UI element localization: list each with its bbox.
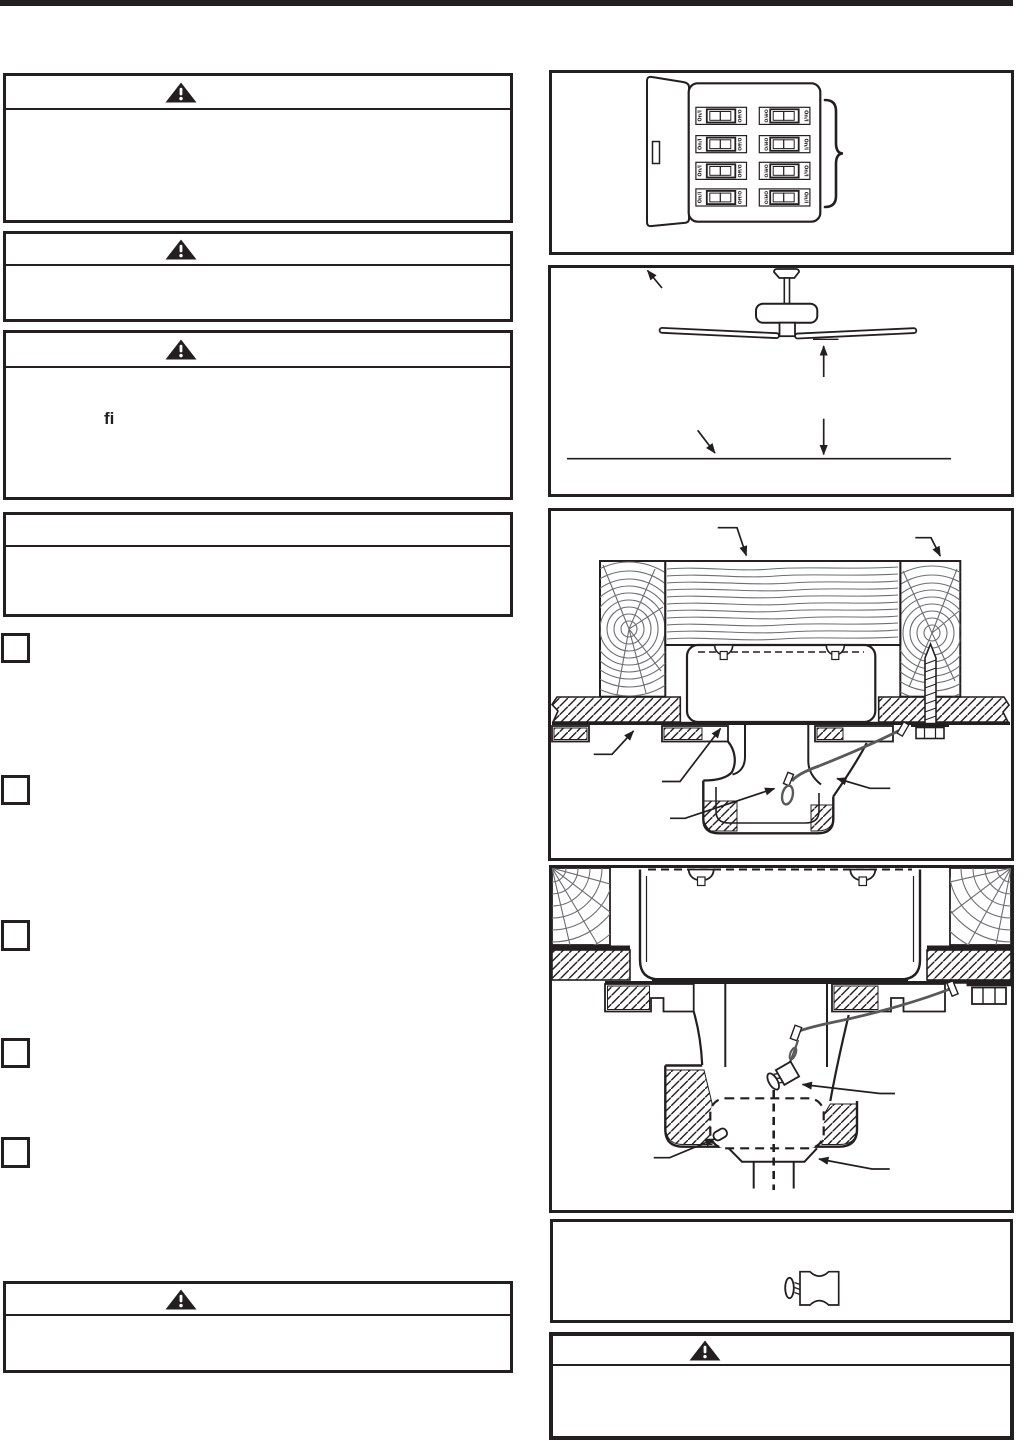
step-checkbox-1: [1, 633, 30, 663]
outlet-box: [640, 870, 920, 980]
stray-text-fragment: fi: [104, 409, 114, 429]
warning-triangle-icon: [164, 1288, 198, 1311]
warning-box-3-header: [6, 333, 510, 368]
warning-box-3: [3, 330, 513, 500]
fan-motor-housing: [756, 304, 817, 323]
leader-brace: [718, 528, 747, 556]
notice-box-header: [6, 515, 510, 547]
step-checkbox-3: [1, 920, 30, 951]
cable-clamp: [765, 1061, 799, 1091]
warning-triangle-icon: [164, 238, 198, 261]
warning-triangle-icon: [164, 81, 198, 104]
circuit-breaker-panel-drawing: On/I Off/O Off/O On/I: [552, 73, 1011, 252]
warning-box-1-header: [6, 76, 510, 110]
fan-blade-left: [659, 328, 779, 338]
figure-cable-clamp: [550, 1219, 1013, 1323]
leader-clamp: [803, 1085, 896, 1094]
ceiling-leader-arrow: [648, 271, 663, 289]
mounting-bracket-joist-drawing: [551, 511, 1011, 858]
step-checkbox-4: [1, 1038, 30, 1068]
warning-triangle-icon: [688, 1339, 722, 1362]
fan-downrod: [784, 278, 789, 304]
fan-canopy: [774, 269, 799, 278]
clamp-body: [800, 1272, 839, 1305]
step-checkbox-5: [1, 1137, 30, 1168]
page-header-bar: [0, 0, 1013, 6]
warning-box-1: [3, 73, 513, 223]
cable-clamp-part-drawing: [553, 1222, 1010, 1320]
notice-box: [3, 512, 513, 617]
ceiling-drywall: [552, 950, 1011, 980]
leader-ceiling: [594, 731, 634, 754]
warning-box-2: [3, 231, 513, 322]
hanger-ball: [710, 1090, 823, 1190]
warning-triangle-icon: [164, 338, 198, 361]
manual-page: fi On/I Off/O: [0, 0, 1027, 1442]
figure-breaker-panel: On/I Off/O Off/O On/I: [549, 70, 1014, 255]
hanger-ball-bracket-drawing: [552, 868, 1011, 1210]
figure-hanger-ball: [549, 865, 1014, 1213]
mounting-bolt: [967, 985, 1012, 1004]
warning-box-bottom-left-header: [6, 1284, 510, 1316]
leader-downrod: [819, 1159, 890, 1169]
curly-brace: [825, 100, 843, 207]
step-checkbox-2: [1, 775, 30, 805]
figure-bracket-joist: [548, 508, 1014, 861]
fan-hub: [780, 323, 796, 337]
joist-corner-right: [923, 868, 1011, 956]
panel-door: [647, 77, 689, 226]
warning-box-2-header: [6, 234, 510, 266]
warning-box-bottom-left: [3, 1281, 513, 1373]
joist-corner-left: [552, 868, 640, 956]
figure-fan-clearance: [548, 265, 1014, 497]
ceiling-fan-clearance-drawing: [551, 268, 1011, 494]
fan-blade-right: [795, 328, 916, 339]
outlet-box: [687, 645, 875, 722]
clamp-screw-head: [785, 1278, 794, 1298]
warning-box-bottom-right: [549, 1332, 1014, 1440]
wood-brace: [665, 561, 900, 645]
floor-leader-arrow: [698, 430, 715, 453]
warning-box-bottom-right-header: [553, 1336, 1010, 1366]
leader-joist: [915, 538, 940, 556]
